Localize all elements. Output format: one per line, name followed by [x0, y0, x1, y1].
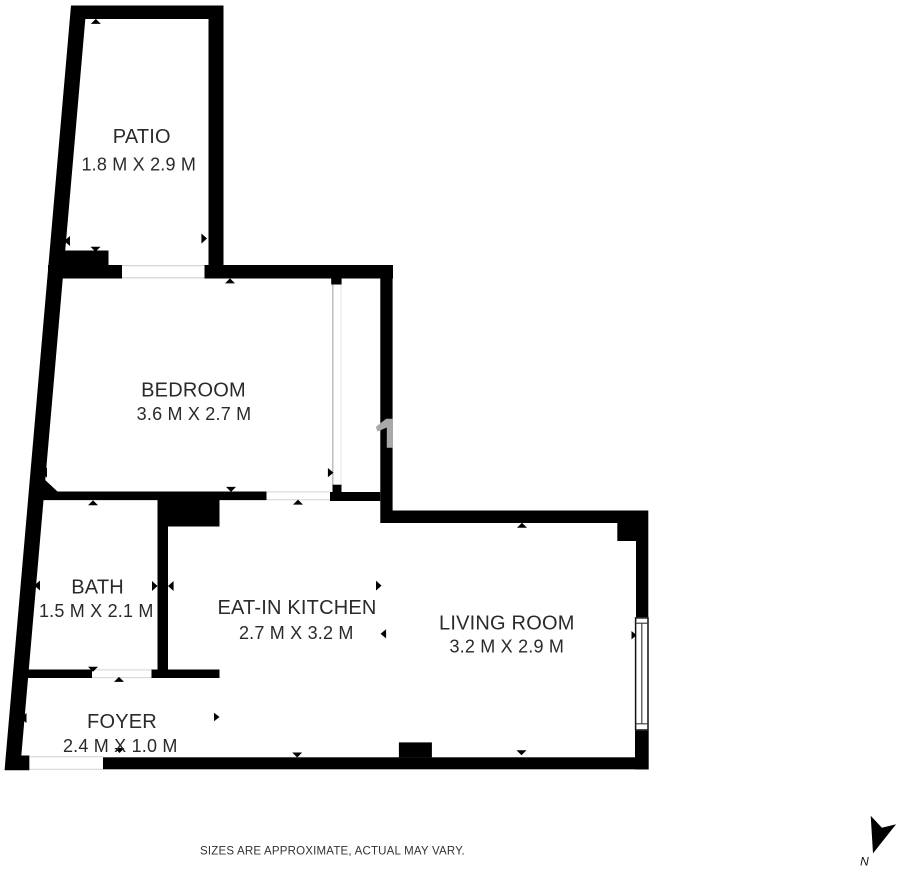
svg-text:1.5 M X 2.1 M: 1.5 M X 2.1 M	[39, 601, 154, 621]
svg-text:SIZES ARE APPROXIMATE, ACTUAL: SIZES ARE APPROXIMATE, ACTUAL MAY VARY.	[200, 846, 465, 858]
svg-text:2.7 M X 3.2 M: 2.7 M X 3.2 M	[239, 623, 354, 643]
svg-text:LIVING ROOM: LIVING ROOM	[439, 612, 575, 634]
svg-text:3.2 M X 2.9 M: 3.2 M X 2.9 M	[449, 636, 564, 656]
svg-text:FOYER: FOYER	[87, 711, 157, 733]
svg-text:3.6 M X 2.7 M: 3.6 M X 2.7 M	[137, 404, 252, 424]
svg-text:1.8 M X 2.9 M: 1.8 M X 2.9 M	[81, 154, 196, 174]
svg-text:BATH: BATH	[71, 577, 124, 599]
svg-text:EAT-IN KITCHEN: EAT-IN KITCHEN	[217, 597, 376, 619]
svg-text:PATIO: PATIO	[113, 126, 171, 148]
svg-text:BEDROOM: BEDROOM	[141, 379, 246, 401]
svg-text:2.4 M X 1.0 M: 2.4 M X 1.0 M	[63, 736, 178, 756]
svg-text:N: N	[860, 855, 869, 869]
